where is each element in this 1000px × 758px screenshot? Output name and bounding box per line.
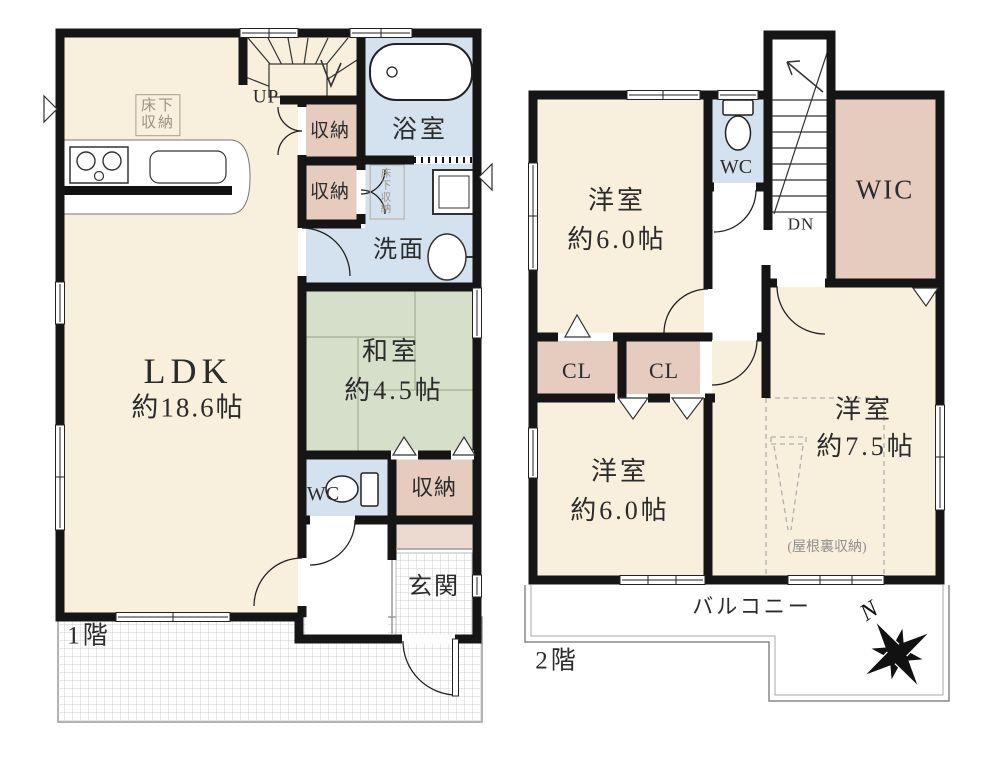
floor2-title: 2階 [535,649,579,674]
room-label-storage2: 収納 [310,183,350,202]
room-label-storage1: 収納 [310,122,350,141]
front-door-leaf [453,639,459,696]
room-label-bedroom2: 洋室 [591,459,649,485]
room-label-washroom: 洗面 [373,238,425,262]
room-size-bedroom1: 約6.0帖 [567,227,667,253]
toilet-2f-icon [723,100,753,150]
room-label-wc-2f: WC [720,157,752,177]
attic-storage-label: (屋根裏収納) [787,541,866,555]
floor-plan-canvas: N LDK 約18.6帖 和室 約4.5帖 浴室 洗面 WC 収納 収納 収納 … [0,0,1000,758]
balcony-label: バルコニー [692,597,812,618]
room-label-wic: WIC [856,177,914,204]
room-size-bedroom2: 約6.0帖 [570,498,670,524]
room-size-washitsu: 約4.5帖 [344,378,444,404]
room-label-closet2: CL [649,360,679,382]
room-label-bedroom3: 洋室 [835,397,893,423]
room-label-storage3: 収納 [411,477,457,499]
stove-icon [70,147,128,183]
stairs-down-label: DN [788,216,815,233]
washing-machine-icon [433,170,475,214]
room-size-ldk: 約18.6帖 [131,395,244,422]
kitchen-counter [64,140,250,214]
stairs-up-label: UP [253,88,279,107]
kitchen-sink-icon [150,151,226,183]
underfloor-storage-label-2: 床下収納 [370,165,405,220]
room-label-ldk: LDK [144,353,233,389]
underfloor-storage-label-1: 床下収納 [135,94,180,136]
room-label-entrance: 玄関 [408,575,460,599]
room-label-washitsu: 和室 [362,339,420,365]
bathtub-icon [370,44,472,100]
room-label-bath: 浴室 [392,118,448,143]
room-label-closet1: CL [562,360,592,382]
room-label-wc-1f: WC [307,484,339,504]
floor1-title: 1階 [67,624,111,649]
room-size-bedroom3: 約7.5帖 [816,434,916,460]
room-label-bedroom1: 洋室 [588,188,646,214]
